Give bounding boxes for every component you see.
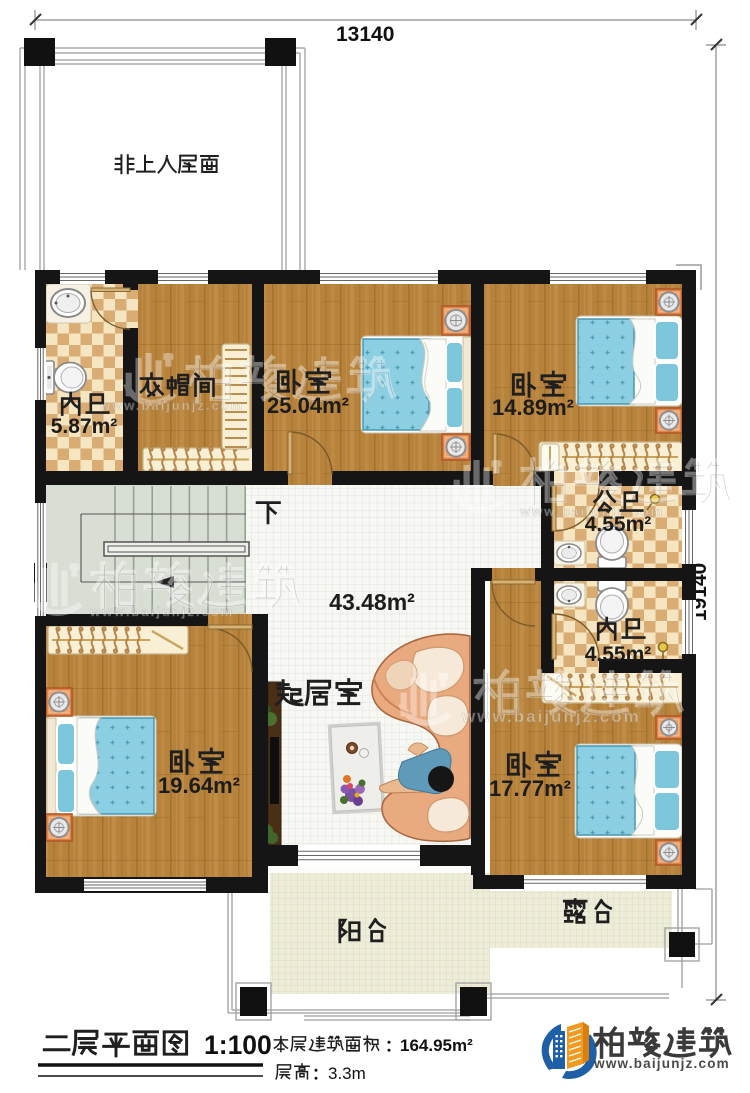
svg-text:13140: 13140 [336,23,394,46]
svg-text:www.baijunjz.com: www.baijunjz.com [461,707,641,726]
svg-text:25.04m²: 25.04m² [267,393,349,418]
svg-text:164.95m²: 164.95m² [400,1036,473,1055]
svg-text:5.87m²: 5.87m² [51,415,118,438]
svg-text:17.77m²: 17.77m² [489,776,571,801]
svg-text:www.baijunjz.com: www.baijunjz.com [593,1056,730,1071]
svg-text:www.baijunjz.com: www.baijunjz.com [89,604,234,619]
svg-text:www.baijunjz.com: www.baijunjz.com [99,398,244,413]
svg-text:19.64m²: 19.64m² [158,773,240,798]
svg-text:3.3m: 3.3m [328,1064,366,1083]
svg-text:4.55m²: 4.55m² [585,643,652,666]
svg-text:43.48m²: 43.48m² [329,589,415,615]
svg-text:：: ： [385,1038,401,1055]
svg-text:1:100: 1:100 [204,1030,272,1060]
svg-text:：: ： [312,1066,328,1083]
svg-text:4.55m²: 4.55m² [585,513,652,536]
svg-text:14.89m²: 14.89m² [492,395,574,420]
